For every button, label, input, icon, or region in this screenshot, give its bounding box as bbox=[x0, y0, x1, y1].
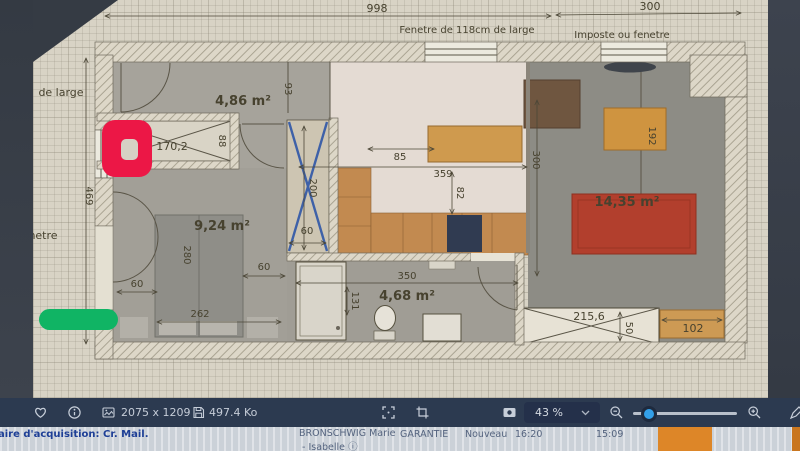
entry-area-label: 4,86 m² bbox=[215, 94, 271, 109]
category-label: GARANTIE bbox=[400, 429, 448, 440]
top-window bbox=[425, 42, 497, 62]
left-cut-label-top: de large bbox=[38, 86, 83, 99]
dim-359: 359 bbox=[433, 169, 452, 180]
time-2: 15:09 bbox=[596, 429, 623, 440]
tall-cabinet bbox=[524, 80, 580, 128]
dim-998: 998 bbox=[367, 2, 388, 15]
dim-300-top: 300 bbox=[640, 0, 661, 13]
favorite-heart-icon[interactable] bbox=[33, 405, 48, 420]
left-cut-label-mid: netre bbox=[33, 229, 58, 242]
email-subject-text: aire d'acquisition: Cr. Mail. bbox=[0, 429, 149, 440]
sink bbox=[423, 314, 461, 341]
dim-262: 262 bbox=[190, 309, 209, 320]
zoom-fit-icon[interactable] bbox=[502, 405, 517, 420]
dim-60-wardrobe: 60 bbox=[301, 226, 314, 237]
dim-88: 88 bbox=[216, 135, 227, 148]
zoom-level-value: 43 % bbox=[535, 406, 563, 419]
contact-name: BRONSCHWIG Marie bbox=[299, 428, 396, 439]
kitchen-appliance bbox=[447, 215, 482, 252]
dim-102: 102 bbox=[683, 322, 704, 335]
orange-category-block bbox=[658, 427, 712, 451]
dim-50: 50 bbox=[623, 322, 634, 335]
living-area-label: 14,35 m² bbox=[595, 195, 660, 210]
dim-192: 192 bbox=[646, 126, 657, 145]
file-size-value: 497.4 Ko bbox=[209, 406, 257, 419]
bathroom-door-opening bbox=[471, 253, 515, 261]
dim-350: 350 bbox=[397, 271, 416, 282]
zoom-slider-thumb[interactable] bbox=[641, 406, 657, 422]
dim-170-2: 170,2 bbox=[156, 140, 188, 153]
green-marker-annotation bbox=[39, 309, 118, 330]
background-window-strip: aire d'acquisition: Cr. Mail. BRONSCHWIG… bbox=[0, 427, 800, 451]
zoom-level-dropdown[interactable]: 43 % bbox=[524, 402, 600, 423]
bedroom-area-label: 9,24 m² bbox=[194, 219, 250, 234]
toilet bbox=[375, 306, 396, 331]
dim-60-left: 60 bbox=[131, 279, 144, 290]
imposte-window bbox=[601, 42, 667, 62]
info-icon-small: ⓘ bbox=[348, 442, 358, 451]
floor-plan-photo: 998 300 Fenetre de 118cm de large Impost… bbox=[0, 0, 800, 398]
image-dimensions-icon bbox=[101, 405, 116, 420]
floor-plan-drawing: 998 300 Fenetre de 118cm de large Impost… bbox=[33, 0, 768, 398]
dim-131: 131 bbox=[349, 291, 360, 310]
info-icon[interactable] bbox=[67, 405, 82, 420]
status-label: Nouveau bbox=[465, 429, 507, 440]
dim-93: 93 bbox=[282, 83, 293, 96]
ceiling-light bbox=[604, 62, 656, 73]
photo-dark-edge-left bbox=[0, 0, 33, 398]
dim-300-kitchen: 300 bbox=[530, 150, 541, 169]
imposte-label: Imposte ou fenetre bbox=[574, 30, 669, 41]
image-dimensions-value: 2075 x 1209 bbox=[121, 406, 191, 419]
dim-60-right: 60 bbox=[258, 262, 271, 273]
bathroom-area-label: 4,68 m² bbox=[379, 289, 435, 304]
french-door-opening bbox=[95, 226, 113, 310]
time-1: 16:20 bbox=[515, 429, 542, 440]
chevron-down-icon bbox=[581, 410, 590, 416]
zoom-in-icon[interactable] bbox=[747, 405, 762, 420]
contact-name-line2: - Isabelle ⓘ bbox=[302, 439, 358, 451]
dim-85: 85 bbox=[394, 152, 407, 163]
kitchen-table bbox=[428, 126, 522, 162]
crop-rotate-icon[interactable] bbox=[415, 405, 430, 420]
zoom-out-icon[interactable] bbox=[609, 405, 624, 420]
dim-280: 280 bbox=[181, 245, 192, 264]
fullscreen-icon[interactable] bbox=[381, 405, 396, 420]
edit-pen-icon[interactable] bbox=[789, 405, 800, 420]
dim-82: 82 bbox=[454, 187, 465, 200]
radiator-tag bbox=[429, 260, 455, 269]
screen: 998 300 Fenetre de 118cm de large Impost… bbox=[0, 0, 800, 451]
orange-edge-block bbox=[792, 427, 800, 451]
photo-dark-edge-right bbox=[768, 0, 800, 398]
window-label: Fenetre de 118cm de large bbox=[399, 25, 534, 36]
dim-469: 469 bbox=[83, 186, 94, 205]
kitchen-living-wall bbox=[526, 62, 530, 253]
dim-215-6: 215,6 bbox=[573, 310, 605, 323]
file-size-icon bbox=[191, 405, 206, 420]
dim-200: 200 bbox=[307, 178, 318, 197]
